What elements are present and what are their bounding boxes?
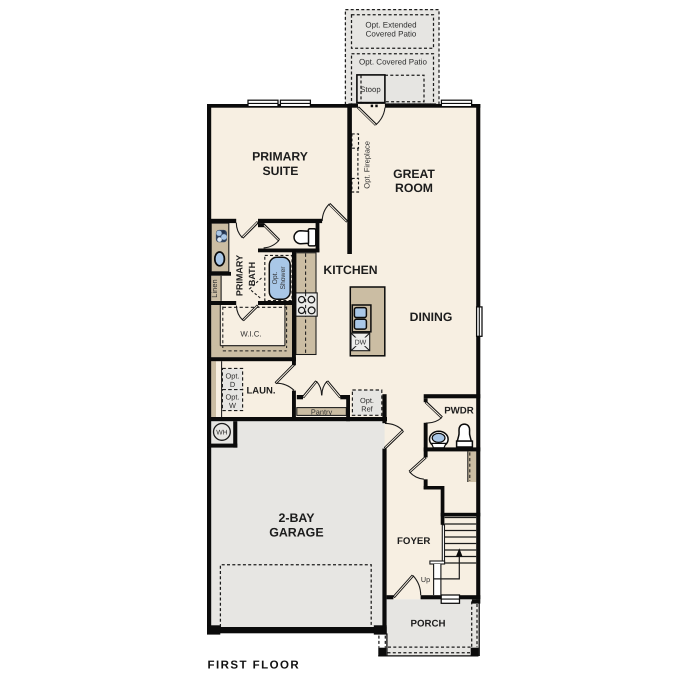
svg-text:WH: WH <box>216 429 227 436</box>
svg-text:Shower: Shower <box>280 266 287 290</box>
svg-text:FIRST FLOOR: FIRST FLOOR <box>208 660 301 672</box>
svg-text:FOYER: FOYER <box>397 536 430 547</box>
svg-text:Linen: Linen <box>210 279 219 297</box>
svg-text:Stoop: Stoop <box>360 85 381 94</box>
svg-text:Ref: Ref <box>361 405 373 414</box>
svg-text:PORCH: PORCH <box>411 618 446 629</box>
svg-text:Covered Patio: Covered Patio <box>366 30 417 39</box>
svg-text:DINING: DINING <box>410 310 453 324</box>
svg-text:D: D <box>230 380 235 389</box>
svg-text:Opt. Extended: Opt. Extended <box>365 20 416 29</box>
svg-text:Opt.: Opt. <box>360 396 374 405</box>
svg-text:PWDR: PWDR <box>444 406 474 417</box>
svg-text:PRIMARY: PRIMARY <box>235 255 245 296</box>
svg-text:W.I.C.: W.I.C. <box>240 330 261 339</box>
svg-text:Opt.: Opt. <box>226 371 240 380</box>
svg-text:Opt. Covered Patio: Opt. Covered Patio <box>359 57 428 66</box>
svg-text:BATH: BATH <box>247 262 257 286</box>
svg-text:Pantry: Pantry <box>311 407 333 416</box>
svg-text:Opt.: Opt. <box>226 393 240 402</box>
svg-text:ROOM: ROOM <box>395 181 433 195</box>
svg-text:Opt. Fireplace: Opt. Fireplace <box>362 141 371 189</box>
svg-text:GREAT: GREAT <box>393 167 435 181</box>
svg-text:Opt.: Opt. <box>272 271 279 284</box>
svg-text:Up: Up <box>421 575 430 584</box>
svg-text:DW: DW <box>355 339 367 346</box>
svg-text:W: W <box>229 401 236 410</box>
svg-text:PRIMARY: PRIMARY <box>252 150 308 164</box>
svg-text:KITCHEN: KITCHEN <box>323 263 377 277</box>
svg-text:SUITE: SUITE <box>263 164 299 178</box>
svg-text:GARAGE: GARAGE <box>269 526 323 540</box>
svg-text:LAUN.: LAUN. <box>246 385 275 396</box>
svg-text:2-BAY: 2-BAY <box>278 511 315 525</box>
